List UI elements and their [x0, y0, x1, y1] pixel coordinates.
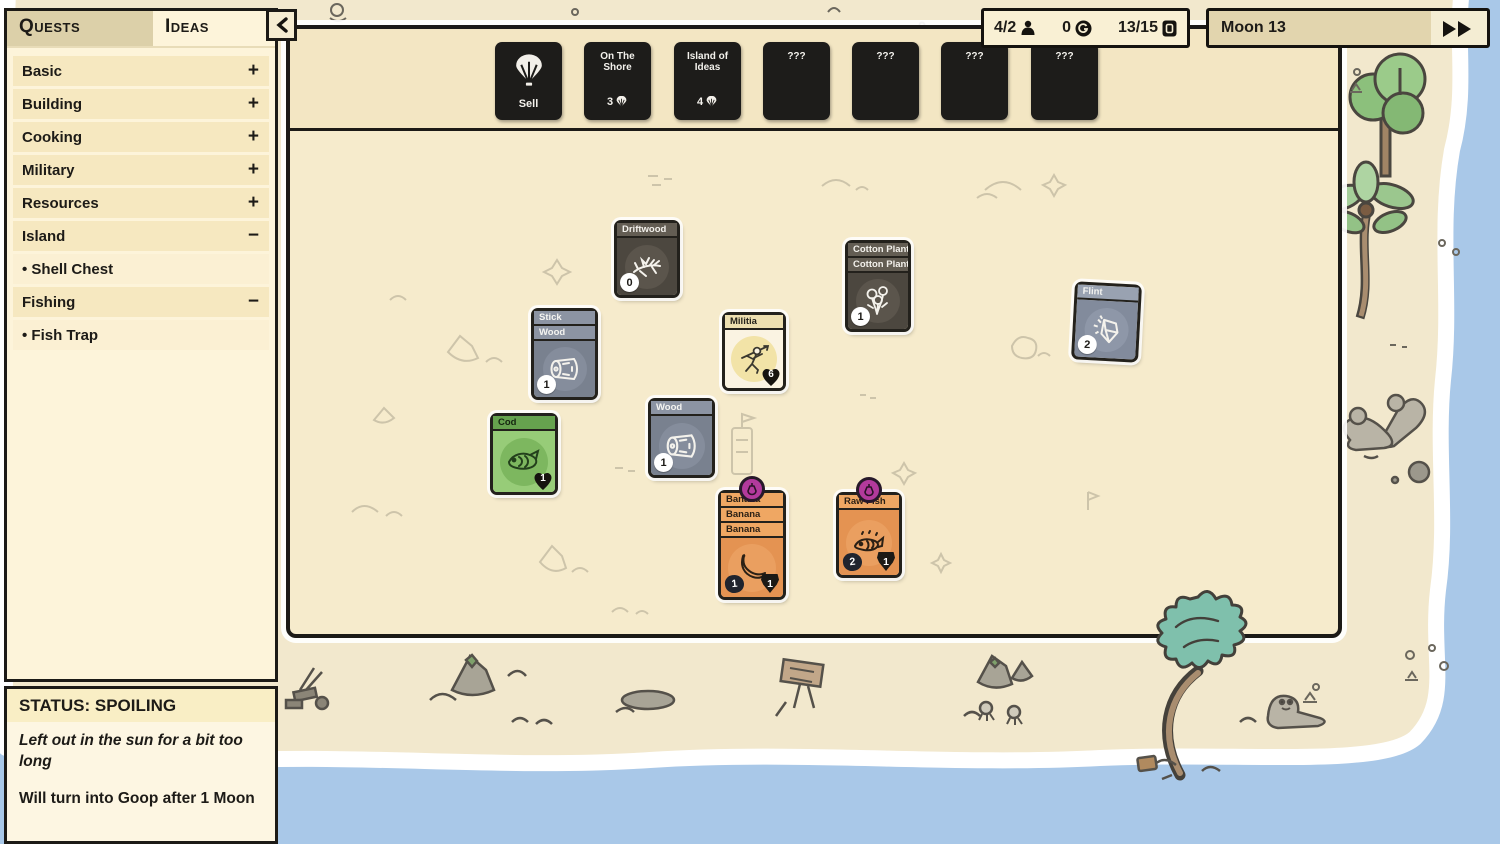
- shell-icon: [705, 96, 718, 108]
- resource-stats: 4/2 0 13/15: [981, 8, 1190, 48]
- pack-title: ???: [852, 42, 919, 62]
- pack-cost: 3: [584, 96, 651, 108]
- card-title: Wood: [534, 326, 595, 341]
- card-title: Cod: [493, 416, 555, 431]
- spoiling-icon: [739, 476, 765, 502]
- card-title: Banana: [721, 523, 783, 538]
- count-badge: 2: [1077, 335, 1097, 355]
- collapse-toggle-icon[interactable]: −: [248, 291, 259, 313]
- coin-count: 0: [1062, 19, 1071, 37]
- shell-icon: [510, 54, 548, 88]
- card-title: Driftwood: [617, 223, 677, 238]
- card-militia[interactable]: Militia 6: [722, 312, 786, 391]
- card-title: Stick: [534, 311, 595, 326]
- card-title: Cotton Plant: [848, 258, 908, 273]
- villager-count: 4/2: [994, 19, 1016, 37]
- card-title: Cotton Plant: [848, 243, 908, 258]
- sell-card[interactable]: Sell: [495, 42, 562, 120]
- card-flint[interactable]: Flint 2: [1071, 281, 1142, 362]
- status-tooltip-panel: STATUS: SPOILING Left out in the sun for…: [4, 686, 278, 844]
- quest-item-label: Resources: [22, 195, 99, 212]
- villager-stat: 4/2: [994, 19, 1036, 37]
- quest-item-label: Cooking: [22, 129, 82, 146]
- pack-title: Island of Ideas: [674, 42, 741, 73]
- status-flavor-text: Left out in the sun for a bit too long: [7, 722, 275, 772]
- quest-item-military[interactable]: Military +: [13, 155, 269, 185]
- card-pack-locked[interactable]: ???: [1031, 42, 1098, 120]
- collapse-panel-button[interactable]: [266, 9, 297, 41]
- quest-item-resources[interactable]: Resources +: [13, 188, 269, 218]
- value-badge: 1: [761, 574, 779, 593]
- pack-cost: 4: [674, 96, 741, 108]
- count-badge: 1: [654, 453, 673, 472]
- quest-item-shell-chest[interactable]: • Shell Chest: [13, 254, 269, 284]
- quest-item-island[interactable]: Island −: [13, 221, 269, 251]
- pack-title: ???: [763, 42, 830, 62]
- tab-ideas[interactable]: Ideas: [153, 11, 275, 46]
- card-stick-wood-stack[interactable]: Stick Wood 1: [531, 308, 598, 400]
- moon-timer[interactable]: Moon 13: [1206, 8, 1490, 48]
- status-title: STATUS: SPOILING: [7, 689, 275, 722]
- count-badge: 1: [851, 307, 870, 326]
- expand-toggle-icon[interactable]: +: [248, 93, 259, 115]
- value-badge: 1: [877, 552, 895, 571]
- card-title: Wood: [651, 401, 712, 416]
- villager-icon: [1020, 20, 1036, 37]
- cardlimit-icon: [1162, 20, 1177, 37]
- expand-toggle-icon[interactable]: +: [248, 126, 259, 148]
- card-pack-on-the-shore[interactable]: On The Shore 3: [584, 42, 651, 120]
- quest-item-basic[interactable]: Basic +: [13, 56, 269, 86]
- cardcount-stat: 13/15: [1118, 19, 1177, 37]
- quest-item-label: Basic: [22, 63, 62, 80]
- quest-item-fishing[interactable]: Fishing −: [13, 287, 269, 317]
- quest-list: Basic + Building + Cooking + Military + …: [7, 48, 275, 361]
- coin-stat: 0: [1062, 19, 1092, 37]
- card-banana-stack[interactable]: Banana Banana Banana 1 1: [718, 490, 786, 600]
- card-pack-island-of-ideas[interactable]: Island of Ideas 4: [674, 42, 741, 120]
- quest-item-label: Military: [22, 162, 75, 179]
- card-title: Banana: [721, 508, 783, 523]
- card-title: Militia: [725, 315, 783, 330]
- goop-icon: [862, 483, 876, 497]
- card-driftwood[interactable]: Driftwood 0: [614, 220, 680, 298]
- quest-item-label: Building: [22, 96, 82, 113]
- quest-item-building[interactable]: Building +: [13, 89, 269, 119]
- tab-quests[interactable]: Quests: [7, 11, 153, 46]
- sell-label: Sell: [495, 98, 562, 110]
- count-badge: 0: [620, 273, 639, 292]
- quest-panel: Quests Ideas Basic + Building + Cooking …: [4, 8, 278, 682]
- expand-toggle-icon[interactable]: +: [248, 159, 259, 181]
- card-cod[interactable]: Cod 1: [490, 413, 558, 495]
- pack-title: On The Shore: [584, 42, 651, 73]
- quest-item-label: • Fish Trap: [22, 327, 98, 344]
- curly-tree-icon: [1118, 575, 1278, 785]
- card-pack-locked[interactable]: ???: [852, 42, 919, 120]
- quest-tabs: Quests Ideas: [7, 11, 275, 48]
- status-effect-text: Will turn into Goop after 1 Moon: [7, 772, 275, 809]
- health-badge: 1: [531, 469, 555, 492]
- chevron-left-icon: [275, 17, 289, 33]
- card-pack-locked[interactable]: ???: [763, 42, 830, 120]
- spoiling-icon: [856, 477, 882, 503]
- count-badge: 1: [537, 375, 556, 394]
- expand-toggle-icon[interactable]: +: [248, 60, 259, 82]
- fast-forward-button[interactable]: [1441, 18, 1481, 40]
- card-count: 13/15: [1118, 19, 1158, 37]
- quest-item-fish-trap[interactable]: • Fish Trap: [13, 320, 269, 350]
- card-raw-fish[interactable]: Raw Fish 2 1: [836, 492, 902, 578]
- quest-item-label: Island: [22, 228, 65, 245]
- shell-icon: [615, 96, 628, 108]
- card-pack-locked[interactable]: ???: [941, 42, 1008, 120]
- quest-item-label: Fishing: [22, 294, 75, 311]
- collapse-toggle-icon[interactable]: −: [248, 225, 259, 247]
- card-cotton-plant-stack[interactable]: Cotton Plant Cotton Plant 1: [845, 240, 911, 332]
- card-wood[interactable]: Wood 1: [648, 398, 715, 478]
- goop-icon: [745, 482, 759, 496]
- fast-forward-icon: [1441, 19, 1475, 39]
- quest-item-cooking[interactable]: Cooking +: [13, 122, 269, 152]
- coin-icon: [1075, 20, 1092, 37]
- expand-toggle-icon[interactable]: +: [248, 192, 259, 214]
- quest-item-label: • Shell Chest: [22, 261, 113, 278]
- health-badge: 6: [759, 365, 783, 388]
- moon-label: Moon 13: [1221, 19, 1286, 37]
